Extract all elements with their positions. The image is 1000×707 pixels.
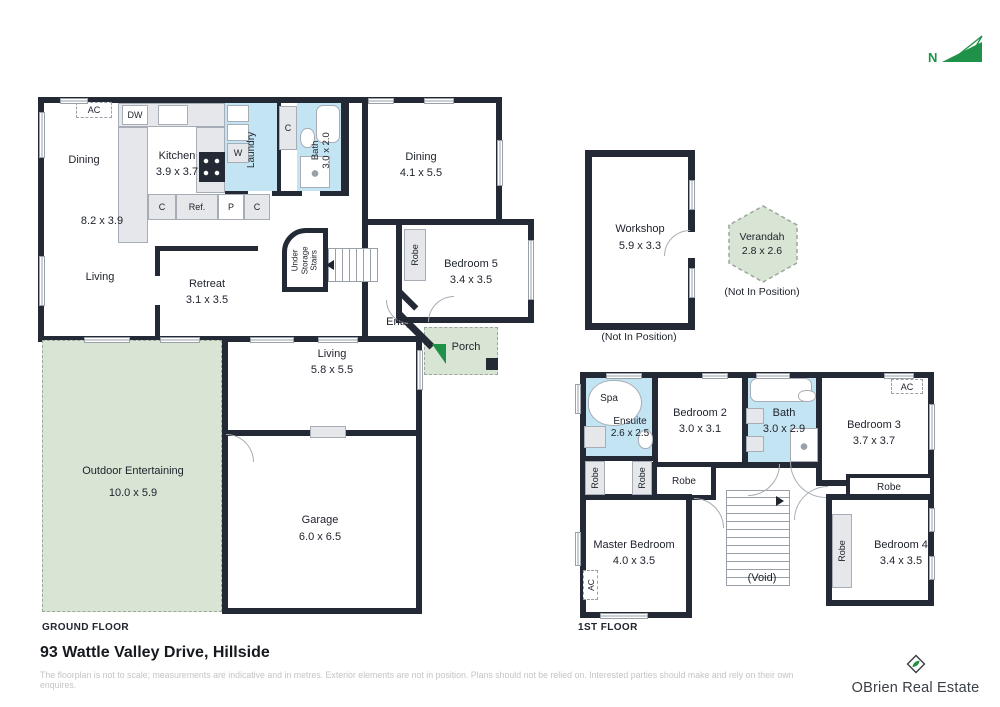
bedroom5-robe: Robe <box>404 229 426 281</box>
bedroom4-door-swing <box>794 486 828 520</box>
room-label-verandah: Verandah2.8 x 2.6 <box>740 230 785 258</box>
kitchen-sink <box>158 105 188 125</box>
brand-logo: OBrien Real Estate <box>838 650 993 696</box>
window <box>318 337 358 343</box>
window <box>929 508 935 532</box>
room-label-bedroom5: Bedroom 53.4 x 3.5 <box>444 257 498 289</box>
north-indicator: N <box>920 28 990 72</box>
ac-label: AC <box>586 579 596 591</box>
cupboard-label: C <box>254 202 261 212</box>
porch-post <box>486 358 498 370</box>
room-label-bedroom3: Bedroom 33.7 x 3.7 <box>847 418 901 450</box>
first-floor-label: 1ST FLOOR <box>578 622 638 633</box>
dishwasher-label: DW <box>128 110 143 120</box>
room-dims-openplan: 8.2 x 3.9 <box>81 214 123 230</box>
toilet <box>798 390 816 402</box>
vanity <box>584 426 606 448</box>
ac-label: AC <box>901 382 914 392</box>
window <box>39 256 45 306</box>
cooktop <box>199 152 225 182</box>
room-label-bath1: Bath3.0 x 2.9 <box>763 406 805 438</box>
window <box>60 98 88 104</box>
room-label-retreat: Retreat3.1 x 3.5 <box>186 277 228 309</box>
window <box>250 337 294 343</box>
cupboard: C <box>148 194 176 220</box>
window <box>160 337 200 343</box>
under-stairs-label: Under Storage Stairs <box>291 242 320 278</box>
wall-bath-right <box>341 103 349 193</box>
window <box>756 373 790 379</box>
robe-label: Robe <box>410 244 420 266</box>
window <box>39 112 45 158</box>
room-label-master: Master Bedroom4.0 x 3.5 <box>593 538 674 570</box>
room-label-dining-a: Dining <box>68 153 99 169</box>
cupboard: C <box>244 194 270 220</box>
label-robe-bedroom3: Robe <box>877 481 901 496</box>
north-label: N <box>928 50 937 65</box>
wall-retreat-top <box>155 246 258 251</box>
room-label-kitchen: Kitchen3.9 x 3.7 <box>156 149 198 181</box>
room-label-workshop: Workshop5.9 x 3.3 <box>615 221 664 254</box>
stairs-direction-arrow <box>776 496 784 506</box>
master-door-swing <box>694 498 724 528</box>
brand-name: OBrien Real Estate <box>838 680 993 696</box>
entry-direction-arrow <box>432 344 446 364</box>
window <box>702 373 728 379</box>
room-label-outdoor: Outdoor Entertaining10.0 x 5.9 <box>82 460 184 504</box>
window <box>689 180 695 210</box>
workshop-note: (Not In Position) <box>601 331 676 343</box>
door-gap <box>302 191 320 196</box>
label-spa: Spa <box>600 392 618 407</box>
wall-retreat-left-a <box>155 246 160 276</box>
room-label-bedroom2: Bedroom 23.0 x 3.1 <box>673 406 727 438</box>
floorplan-page: N DW C Ref. P C C AC W Under Storage S <box>0 0 1000 707</box>
robe-label: Robe <box>837 540 847 562</box>
disclaimer-text: The floorplan is not to scale; measureme… <box>40 670 820 690</box>
robe-label: Robe <box>637 467 647 489</box>
window <box>497 140 503 186</box>
verandah-note: (Not In Position) <box>724 286 799 298</box>
pantry: P <box>218 194 244 220</box>
window <box>929 556 935 580</box>
room-label-bedroom4: Bedroom 43.4 x 3.5 <box>874 538 928 570</box>
wall-retreat-left-b <box>155 305 160 338</box>
dishwasher: DW <box>122 105 148 125</box>
ac-unit: AC <box>583 570 598 600</box>
under-stairs-storage: Under Storage Stairs <box>282 228 328 292</box>
room-label-living-b: Living5.8 x 5.5 <box>311 347 353 379</box>
bedroom4-robe: Robe <box>832 514 852 588</box>
ac-unit: AC <box>891 379 923 394</box>
room-label-bath-g: Bath3.0 x 2.0 <box>304 118 338 182</box>
window <box>600 613 648 619</box>
vanity <box>746 436 764 452</box>
ac-label: AC <box>88 105 101 115</box>
refrigerator: Ref. <box>176 194 218 220</box>
window <box>689 268 695 298</box>
window <box>575 532 581 566</box>
property-address-title: 93 Wattle Valley Drive, Hillside <box>40 644 270 662</box>
robe-closet: Robe <box>585 461 605 495</box>
ac-unit: AC <box>76 102 112 118</box>
window <box>368 98 394 104</box>
window <box>424 98 454 104</box>
cupboard-label: C <box>159 202 166 212</box>
room-label-dining-b: Dining4.1 x 5.5 <box>400 150 442 182</box>
window <box>929 404 935 450</box>
label-robe-bedroom2: Robe <box>672 475 696 490</box>
window <box>417 350 423 390</box>
cupboard-label: C <box>285 123 292 133</box>
brand-diamond-icon <box>902 650 930 678</box>
ground-stairs <box>328 248 378 282</box>
north-arrow-icon <box>938 30 986 68</box>
refrigerator-label: Ref. <box>189 202 206 212</box>
linen-cupboard: C <box>279 106 297 150</box>
room-label-laundry: Laundry <box>239 118 265 182</box>
window <box>528 240 534 300</box>
window <box>575 384 581 414</box>
tv-niche <box>310 426 346 438</box>
robe-label: Robe <box>590 467 600 489</box>
label-porch: Porch <box>452 340 481 356</box>
robe-closet: Robe <box>632 461 652 495</box>
room-label-garage: Garage6.0 x 6.5 <box>299 512 341 545</box>
window <box>84 337 130 343</box>
vanity <box>746 408 764 424</box>
ground-floor-label: GROUND FLOOR <box>42 622 129 633</box>
pantry-label: P <box>228 202 234 212</box>
stairs-direction-arrow <box>326 260 334 270</box>
window <box>884 373 914 379</box>
room-label-living-a: Living <box>86 270 115 286</box>
label-void: (Void) <box>748 571 777 587</box>
label-entry: Entry <box>386 315 412 331</box>
room-label-ensuite: Ensuite2.6 x 2.5 <box>611 416 649 440</box>
window <box>606 373 642 379</box>
